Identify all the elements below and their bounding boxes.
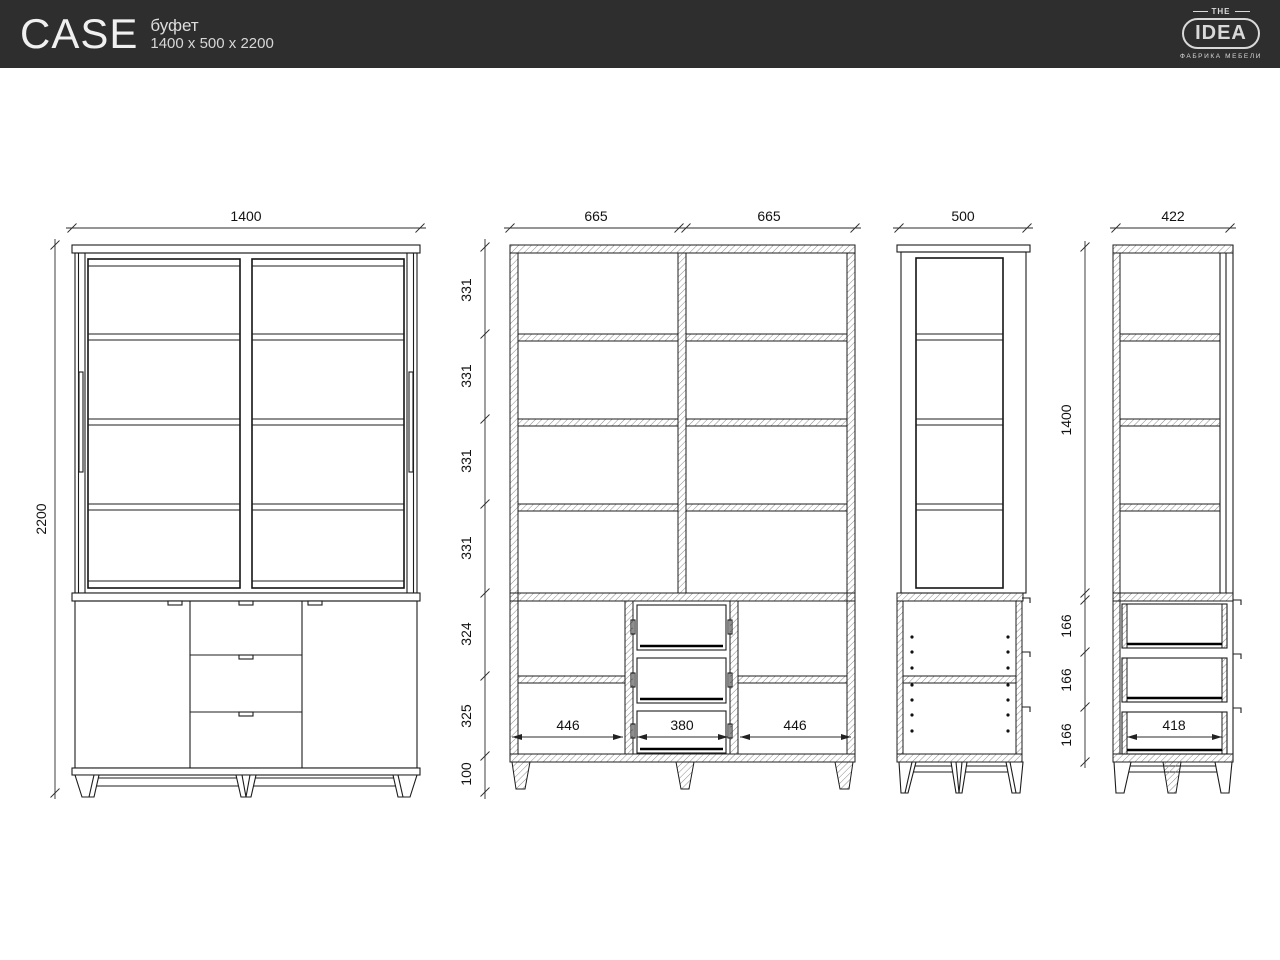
dim-front-height: [51, 239, 60, 799]
product-title-block: CASE буфет 1400 x 500 x 2200: [0, 13, 274, 55]
dim-d3: 166: [1058, 723, 1074, 747]
side-upper-body: [901, 252, 1026, 593]
dim-sidesection-width-label: 422: [1161, 208, 1185, 224]
view-front-elevation: 1400 2200: [33, 208, 426, 799]
front-bottom-board: [72, 768, 420, 775]
technical-drawing: 1400 2200: [0, 0, 1280, 960]
dim-inner-center: 380: [670, 717, 694, 733]
view-side-section: 422 1400 166 166 166: [1058, 208, 1241, 793]
side-legs: [899, 762, 1023, 793]
front-finger-pulls: [168, 601, 322, 716]
side-bottom-board: [897, 754, 1022, 762]
side-top-board: [897, 245, 1030, 252]
section-mid-board: [510, 593, 855, 601]
side-shelf-pin-holes: [910, 635, 1009, 732]
section-right-wall: [847, 253, 855, 754]
front-upper-body: [75, 253, 417, 593]
dim-front-width: [66, 224, 426, 233]
side-shelf-lines: [916, 334, 1003, 510]
dim-inner-depth-label: 418: [1162, 717, 1186, 733]
view-side-elevation: 500: [893, 208, 1033, 793]
product-type: буфет: [150, 16, 273, 36]
front-lower-splits: [190, 601, 302, 768]
dim-front-width-label: 1400: [230, 208, 261, 224]
section-bottom-board: [510, 754, 855, 762]
dim-side-width: [893, 224, 1033, 233]
front-top-board: [72, 245, 420, 253]
dim-v2: 331: [458, 364, 474, 388]
dim-d2: 166: [1058, 668, 1074, 692]
front-left-door-handle: [79, 372, 83, 472]
logo-idea-badge: IDEA: [1182, 18, 1260, 49]
product-name: CASE: [20, 13, 138, 55]
section-drawerbay-right-wall: [730, 601, 738, 754]
front-side-stiles: [79, 253, 414, 593]
section-drawerbay-left-wall: [625, 601, 633, 754]
side-mid-board: [897, 593, 1023, 601]
front-shelf-lines: [88, 334, 404, 510]
logo-the-row: THE: [1193, 7, 1250, 16]
sidesection-top-board: [1113, 245, 1233, 253]
logo-right-rule: [1235, 11, 1250, 12]
dim-section-vertical-chain: [481, 239, 490, 799]
dim-v5: 324: [458, 622, 474, 646]
dim-v4: 331: [458, 536, 474, 560]
product-subtitle: буфет 1400 x 500 x 2200: [150, 16, 273, 54]
dim-v6: 325: [458, 704, 474, 728]
logo-the: THE: [1212, 8, 1231, 16]
section-legs: [512, 762, 853, 789]
sidesection-bottom-board: [1113, 754, 1233, 762]
dim-section-left-label: 665: [584, 208, 608, 224]
sidesection-front-wall: [1113, 253, 1120, 754]
dim-inner-widths: [512, 734, 851, 740]
front-divider-board: [72, 593, 420, 601]
dim-v3: 331: [458, 449, 474, 473]
section-lower-shelf-right: [738, 676, 847, 683]
dim-inner-left: 446: [556, 717, 580, 733]
front-lower-body: [75, 601, 417, 768]
front-right-door-handle: [409, 372, 413, 472]
sidesection-mid-board: [1113, 593, 1233, 601]
view-front-section: 665 665 331 331 331 331 324 325 100: [458, 208, 861, 799]
logo-tagline: ФАБРИКА МЕБЕЛИ: [1180, 53, 1262, 60]
section-lower-shelf-left: [518, 676, 625, 683]
page: 1400 2200: [0, 0, 1280, 960]
section-left-wall: [510, 253, 518, 754]
dim-inner-depth: [1127, 734, 1222, 740]
sidesection-legs: [1114, 762, 1232, 793]
section-center-divider: [678, 253, 686, 593]
side-drawer-front-tabs: [1022, 598, 1030, 712]
front-door-rails: [88, 266, 404, 581]
dim-section-right-label: 665: [757, 208, 781, 224]
dim-section-top: [504, 224, 861, 233]
front-right-glass-door: [252, 259, 404, 588]
dim-side-width-label: 500: [951, 208, 975, 224]
dim-sidesection-vertical: [1081, 241, 1090, 768]
sidesection-drawer-front-tabs: [1233, 600, 1241, 713]
dim-upper-height: 1400: [1058, 404, 1074, 435]
dim-v7: 100: [458, 762, 474, 786]
section-top-board: [510, 245, 855, 253]
product-size: 1400 x 500 x 2200: [150, 35, 273, 54]
front-left-glass-door: [88, 259, 240, 588]
dim-sidesection-width: [1110, 224, 1236, 233]
brand-logo: THE IDEA ФАБРИКА МЕБЕЛИ: [1178, 7, 1264, 60]
dim-v1: 331: [458, 278, 474, 302]
side-glass-door: [916, 258, 1003, 588]
side-lower-right-wall: [1016, 601, 1022, 754]
dim-inner-right: 446: [783, 717, 807, 733]
side-lower-shelf: [903, 676, 1016, 683]
dim-front-height-label: 2200: [33, 503, 49, 534]
sidesection-shelves: [1120, 334, 1220, 511]
dim-d1: 166: [1058, 614, 1074, 638]
header-bar: CASE буфет 1400 x 500 x 2200 THE IDEA ФА…: [0, 0, 1280, 68]
side-lower-left-wall: [897, 601, 903, 754]
logo-left-rule: [1193, 11, 1208, 12]
